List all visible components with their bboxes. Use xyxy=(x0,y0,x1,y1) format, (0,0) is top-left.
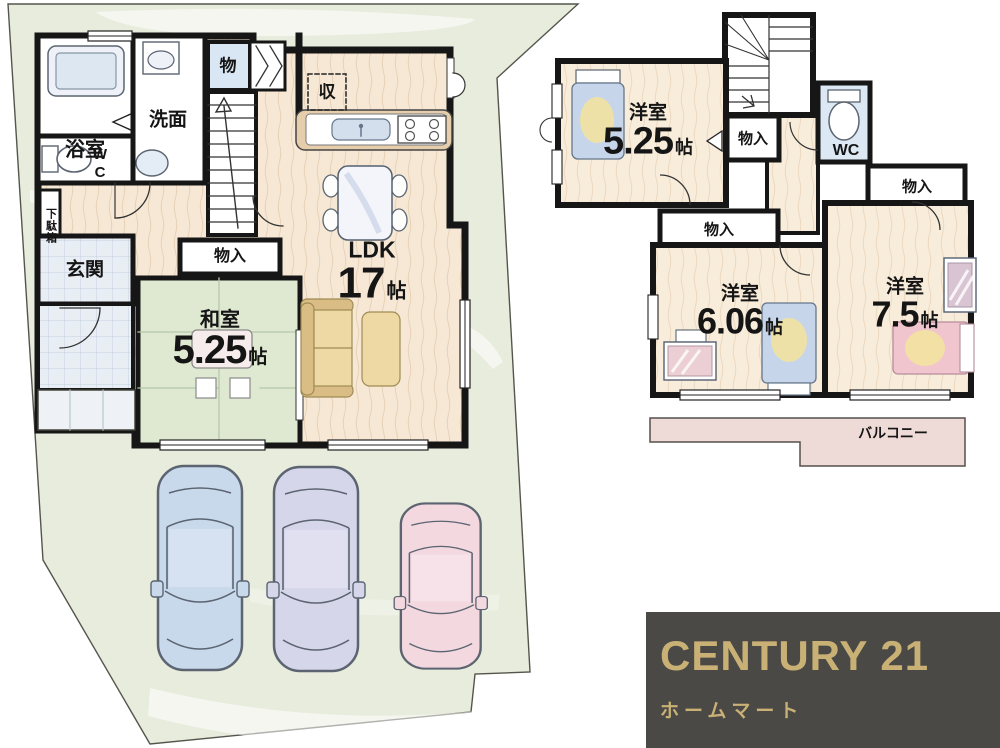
washitsu-label: 和室 5.25帖 xyxy=(173,310,268,370)
ottoman-icon xyxy=(362,312,400,386)
car-blue xyxy=(151,466,249,670)
wc1-label: WC xyxy=(93,146,108,182)
car-lavender xyxy=(267,467,365,671)
brand-name: CENTURY 21 xyxy=(660,632,1000,680)
kitchen-storage-label: 収 xyxy=(319,84,336,101)
closet-mid-label: 物入 xyxy=(704,223,734,238)
stairs2-icon xyxy=(725,15,813,115)
toilet-icon xyxy=(42,146,58,172)
closet-right-label: 物入 xyxy=(902,180,932,195)
century21-logo: CENTURY 21 ホームマート xyxy=(646,612,1000,748)
washroom-label: 洗面 xyxy=(149,111,187,130)
bedroom2-label: 洋室 6.06帖 xyxy=(697,285,783,340)
stairs1-icon xyxy=(208,92,256,235)
closet-1f-label: 物入 xyxy=(214,249,246,265)
shoe-cabinet-label: 下駄箱 xyxy=(45,208,56,244)
balcony-label: バルコニー xyxy=(858,426,928,440)
basin-icon xyxy=(136,150,168,176)
ldk-label: LDK 17帖 xyxy=(338,239,407,306)
cushion-icon xyxy=(230,378,250,398)
bedroom3-label: 洋室 7.5帖 xyxy=(871,278,938,333)
approach-tiles xyxy=(38,390,135,430)
bedroom1-label: 洋室 5.25帖 xyxy=(603,104,693,161)
brand-subtitle: ホームマート xyxy=(660,696,1000,723)
entrance-label: 玄関 xyxy=(66,261,104,280)
kitchen-counter-icon xyxy=(296,110,452,150)
closet-hall-label: 物入 xyxy=(738,132,768,147)
floor2-plan xyxy=(540,15,976,466)
cushion-icon xyxy=(196,378,216,398)
toilet-icon xyxy=(829,102,859,140)
floorplan-page: 浴室 洗面 WC 物 下駄箱 玄関 物入 収 和室 5.25帖 LDK 17帖 … xyxy=(0,0,1000,748)
storage-small-label: 物 xyxy=(220,58,237,75)
sofa-icon xyxy=(301,299,400,397)
wc2-label: WC xyxy=(833,143,860,159)
car-pink xyxy=(394,503,487,668)
bed-headboard xyxy=(576,70,620,83)
porch xyxy=(38,304,133,390)
